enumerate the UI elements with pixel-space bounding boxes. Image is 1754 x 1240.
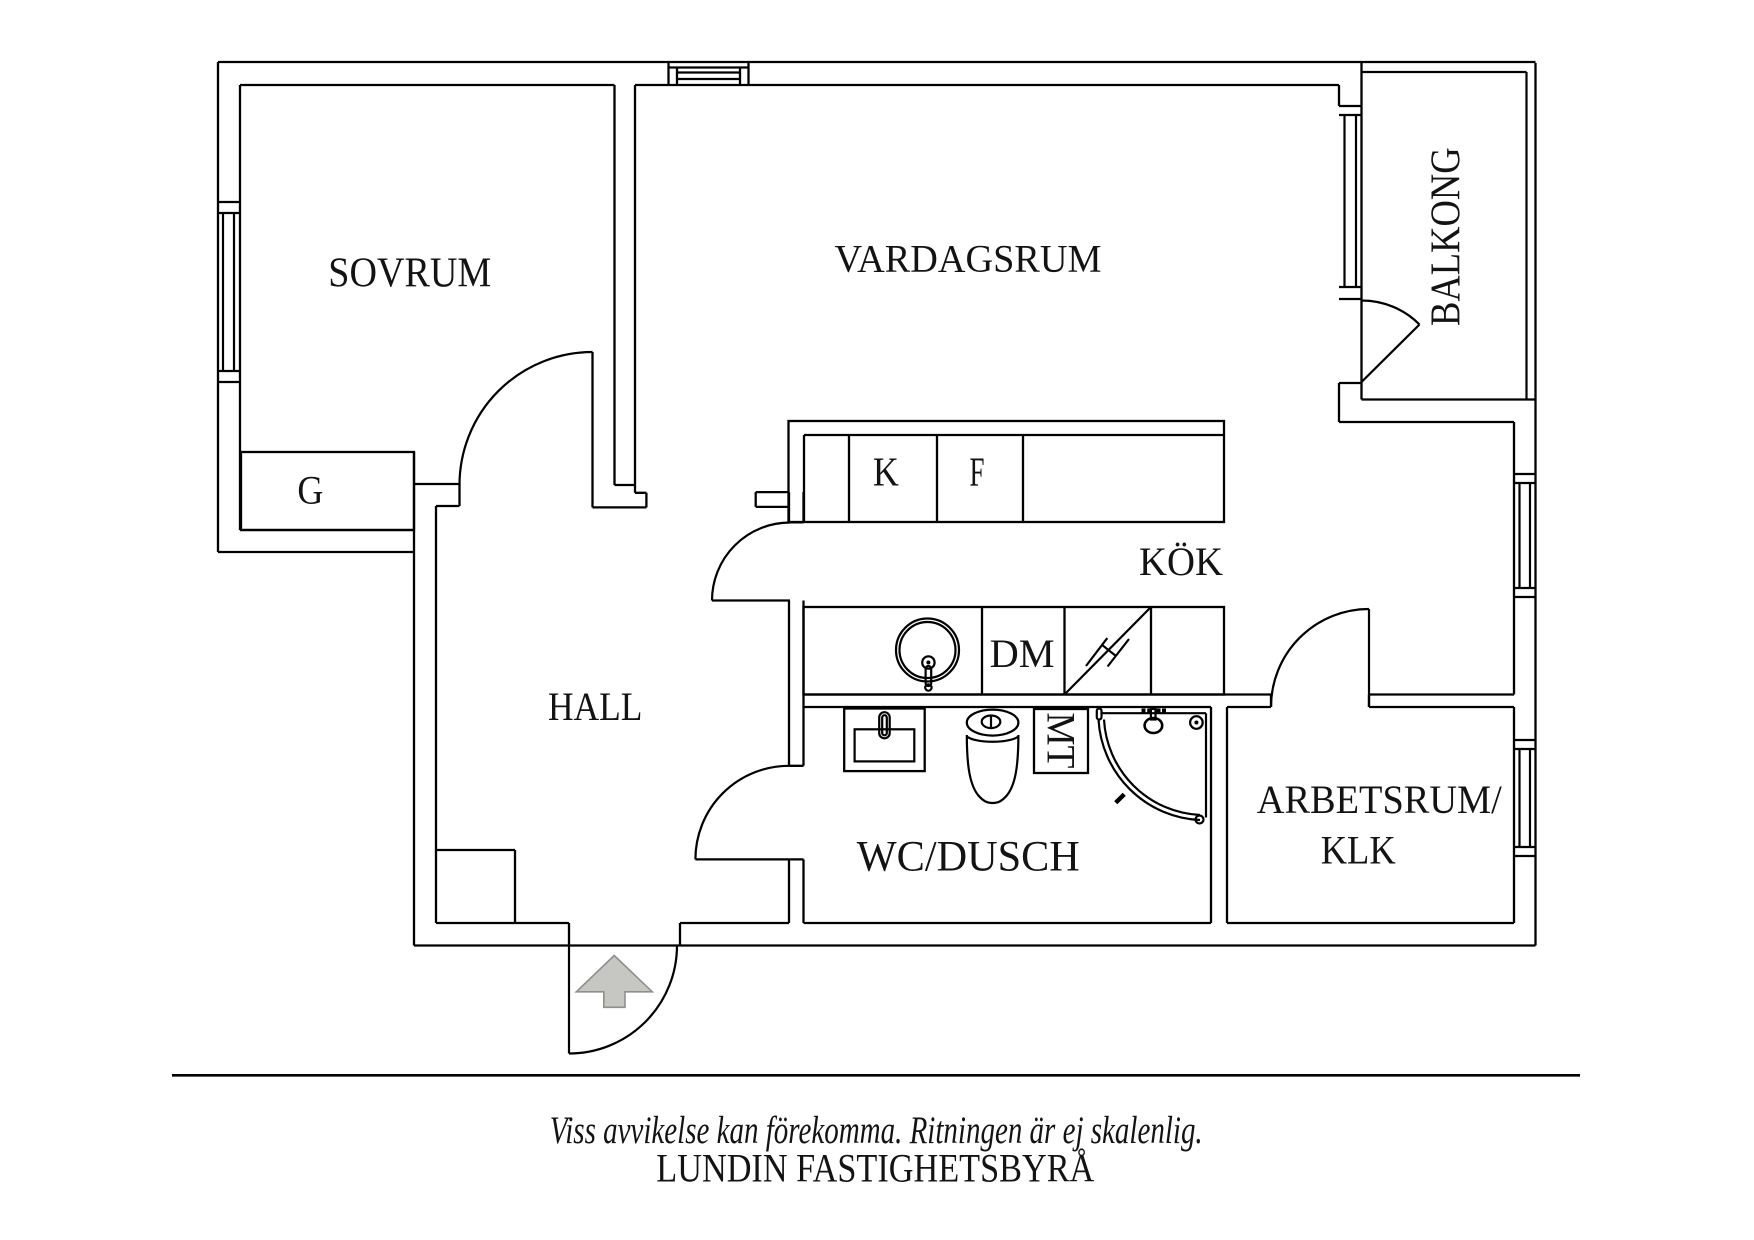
- svg-text:F: F: [970, 449, 985, 495]
- svg-text:KLK: KLK: [1321, 827, 1396, 872]
- svg-text:DM: DM: [990, 631, 1055, 676]
- svg-text:KÖK: KÖK: [1139, 539, 1223, 584]
- svg-text:ARBETSRUM/: ARBETSRUM/: [1257, 777, 1503, 822]
- svg-text:LUNDIN FASTIGHETSBYRÅ: LUNDIN FASTIGHETSBYRÅ: [656, 1146, 1094, 1191]
- svg-text:VARDAGSRUM: VARDAGSRUM: [835, 237, 1102, 280]
- svg-text:WC/DUSCH: WC/DUSCH: [857, 833, 1080, 881]
- svg-text:HALL: HALL: [548, 684, 643, 729]
- svg-text:BALKONG: BALKONG: [1424, 147, 1470, 326]
- svg-text:K: K: [873, 449, 899, 495]
- svg-text:G: G: [297, 469, 323, 513]
- svg-text:SOVRUM: SOVRUM: [328, 250, 491, 297]
- svg-text:MT: MT: [1039, 712, 1084, 768]
